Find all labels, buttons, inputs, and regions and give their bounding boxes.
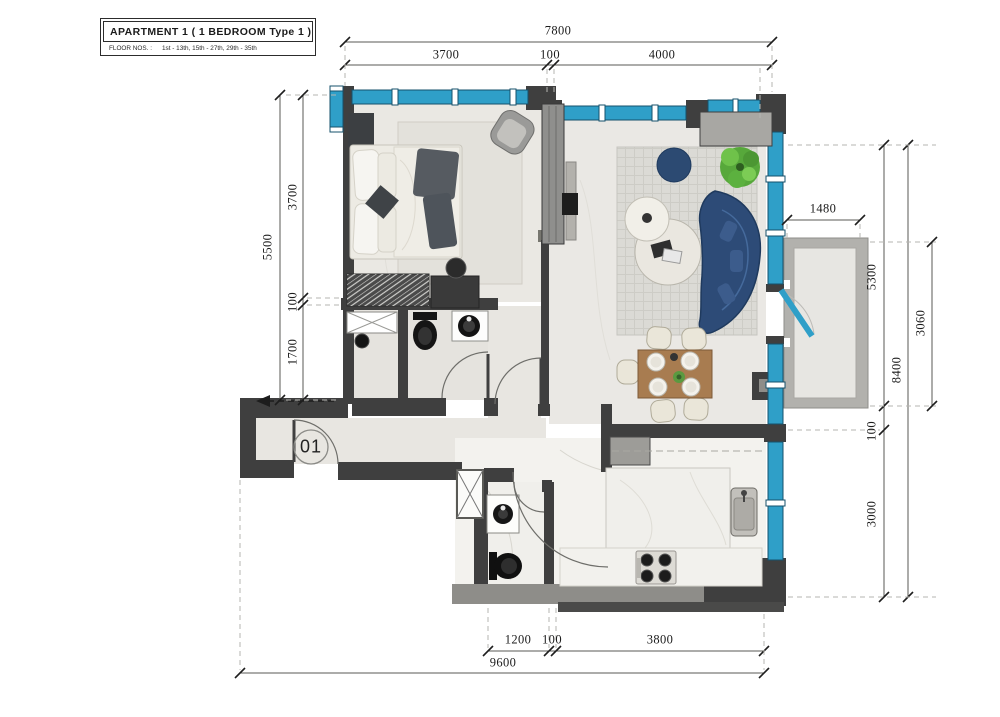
dining-chair — [683, 397, 708, 421]
dim-right-seg1: 5300 — [865, 264, 880, 291]
shower-tray — [347, 312, 397, 333]
apartment-title: APARTMENT 1 ( 1 BEDROOM Type 1 ) — [103, 21, 313, 42]
pouf — [657, 148, 691, 182]
wardrobe — [542, 104, 564, 244]
dim-top-seg1: 3700 — [433, 48, 460, 63]
dim-bottom-total: 9600 — [490, 656, 517, 671]
dim-bottom-seg1: 1200 — [505, 633, 532, 648]
balcony — [781, 238, 868, 408]
tv-icon — [562, 193, 578, 215]
dim-top-seg3: 4000 — [649, 48, 676, 63]
dim-left-seg1: 3700 — [286, 184, 301, 211]
dining-chair — [646, 326, 672, 350]
dresser — [347, 274, 429, 306]
shaft — [457, 470, 483, 518]
dim-balcony-depth: 3060 — [914, 310, 929, 337]
bed — [350, 145, 462, 259]
living-window-top — [558, 106, 686, 120]
dim-balcony-width: 1480 — [810, 202, 837, 217]
wc-toilet-icon — [489, 552, 522, 580]
wc-washbasin-icon — [487, 495, 519, 533]
dim-top-total: 7800 — [545, 24, 572, 39]
dim-bottom-seg2: 100 — [542, 633, 562, 648]
unit-number-label: 01 — [300, 437, 322, 458]
dim-right-total: 8400 — [890, 357, 905, 384]
dim-right-seg3: 3000 — [865, 501, 880, 528]
dining-chair — [681, 327, 706, 351]
floors-label: FLOOR NOS. : — [109, 45, 152, 52]
dim-right-seg2: 100 — [865, 421, 880, 441]
dining-chair — [617, 360, 639, 384]
dim-left-total: 5500 — [261, 234, 276, 261]
dim-left-seg2: 100 — [286, 292, 301, 312]
nightstand — [348, 113, 374, 147]
washbasin-icon — [452, 311, 488, 341]
dim-left-seg3: 1700 — [286, 339, 301, 366]
floor-plan-drawing — [0, 0, 1000, 717]
living-window-right — [768, 132, 783, 284]
dim-bottom-seg3: 3800 — [647, 633, 674, 648]
dining-chair — [650, 399, 676, 423]
stool — [446, 258, 466, 278]
floor-numbers-row: FLOOR NOS. : 1st - 13th, 15th - 27th, 29… — [103, 42, 313, 53]
storage-cabinet — [700, 112, 772, 146]
floor-plan-page: APARTMENT 1 ( 1 BEDROOM Type 1 ) FLOOR N… — [0, 0, 1000, 717]
toilet-icon — [413, 312, 437, 350]
bedroom-window — [352, 90, 528, 104]
sink-icon — [731, 488, 757, 536]
kitchen-counter — [606, 468, 730, 553]
title-block: APARTMENT 1 ( 1 BEDROOM Type 1 ) FLOOR N… — [100, 18, 316, 56]
dim-top-seg2: 100 — [540, 48, 560, 63]
floor-drain — [355, 334, 369, 348]
hob-icon — [636, 551, 676, 584]
floors-value: 1st - 13th, 15th - 27th, 29th - 35th — [162, 45, 257, 52]
console-table — [431, 276, 479, 308]
blanket — [413, 148, 460, 200]
